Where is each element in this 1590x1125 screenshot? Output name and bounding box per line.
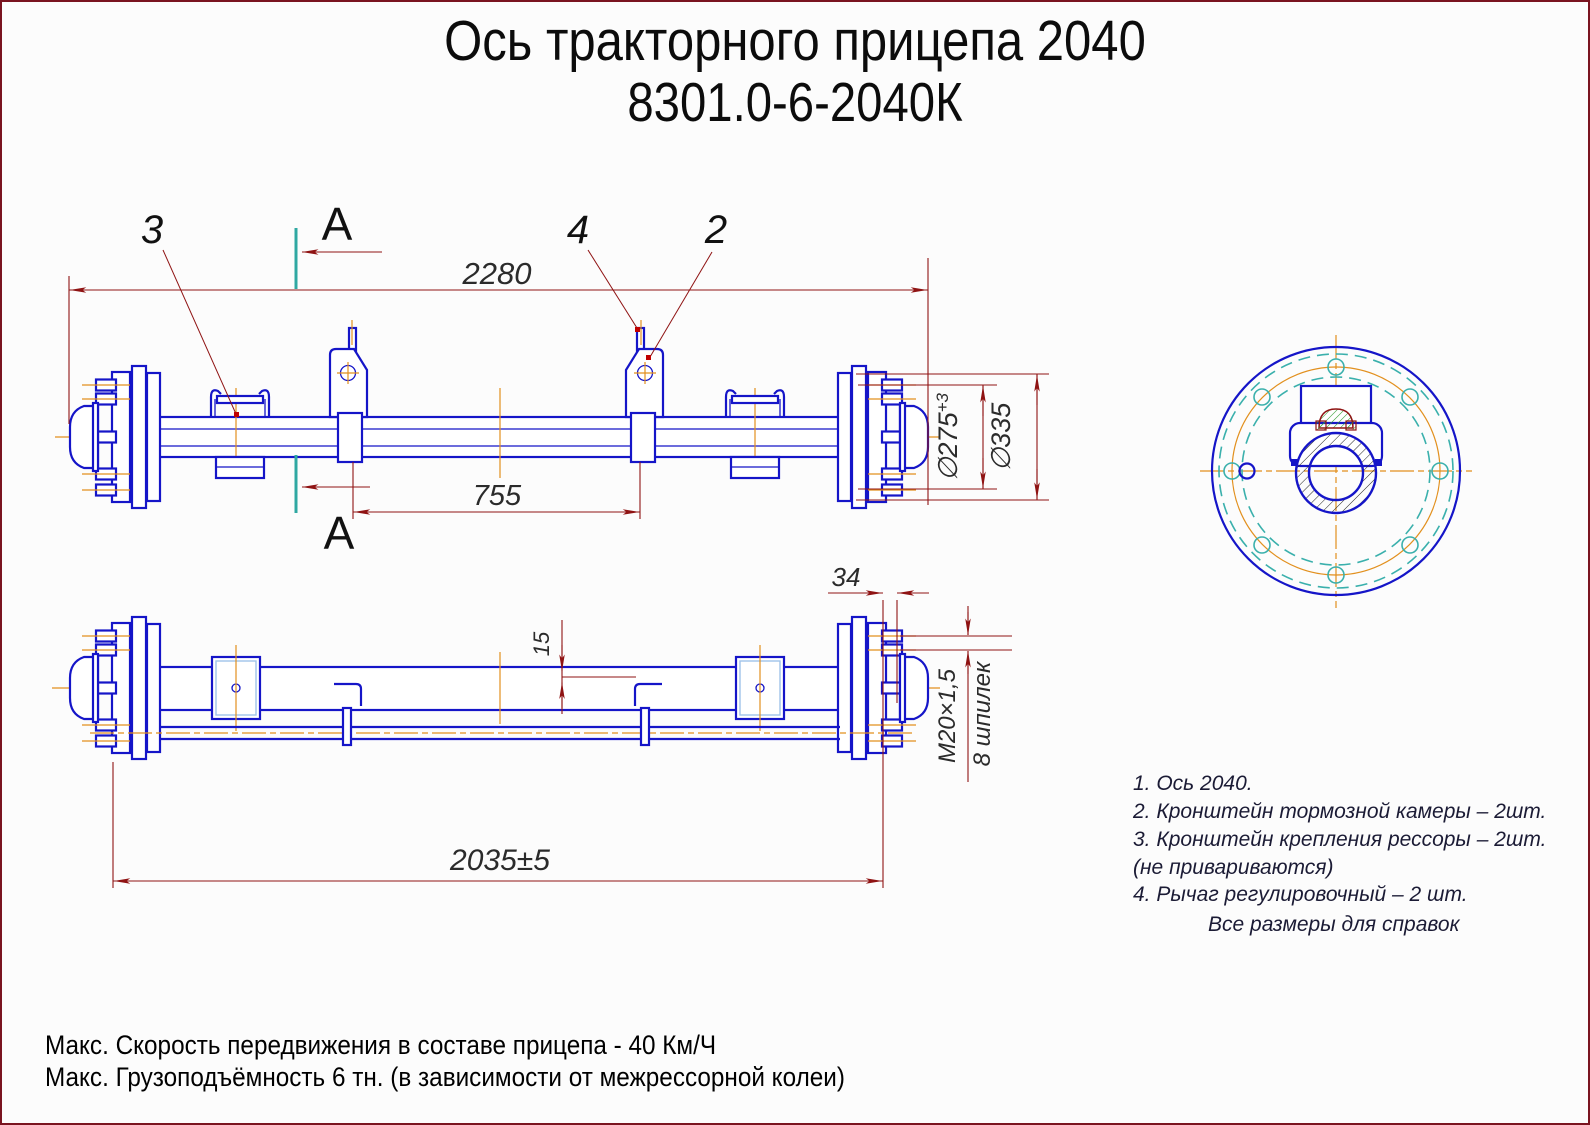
leader-dot-3 xyxy=(234,412,239,417)
spring-seat-left xyxy=(212,645,260,731)
section-label-bottom: А xyxy=(324,507,355,559)
rod-bracket-left xyxy=(343,708,351,745)
dim-bolt-circle-value: ∅275 xyxy=(933,411,963,481)
leader-dot-4 xyxy=(635,327,640,332)
spec-max-load: Макс. Грузоподъёмность 6 тн. (в зависимо… xyxy=(45,1062,845,1093)
drawing-sheet: А А 3 4 2 2280 755 ∅ xyxy=(0,0,1590,1125)
dim-stud-thread: М20×1,5 xyxy=(934,668,961,763)
dim-stud-projection: 34 xyxy=(832,562,861,592)
note-4: 4. Рычаг регулировочный – 2 шт. xyxy=(1133,883,1468,907)
callout-2: 2 xyxy=(704,208,727,252)
note-1: 1. Ось 2040. xyxy=(1133,772,1253,796)
rod-bracket-right xyxy=(641,708,649,745)
spec-max-speed: Макс. Скорость передвижения в составе пр… xyxy=(45,1030,716,1061)
notes-footer: Все размеры для справок xyxy=(1208,913,1460,937)
axle-drawing-canvas: А А 3 4 2 2280 755 ∅ xyxy=(0,0,1590,1125)
dim-overall-length: 2280 xyxy=(462,256,532,291)
dim-flange-diameter: ∅335 xyxy=(986,402,1016,472)
note-3: 3. Кронштейн крепления рессоры – 2шт. xyxy=(1133,828,1546,852)
section-label-top: А xyxy=(322,198,353,250)
left-hub-side xyxy=(70,366,160,508)
dim-bolt-circle-tolerance: +3 xyxy=(933,392,952,412)
drawing-title: Ось тракторного прицепа 2040 8301.0-6-20… xyxy=(111,10,1478,132)
callout-4: 4 xyxy=(567,208,589,252)
dim-bolt-circle: ∅275+3 xyxy=(933,392,963,481)
title-line1: Ось тракторного прицепа 2040 xyxy=(111,10,1478,72)
dim-levers-span: 755 xyxy=(473,480,522,512)
callout-3: 3 xyxy=(141,208,163,252)
note-3b: (не привариваются) xyxy=(1133,856,1333,880)
dim-stud-count: 8 шпилек xyxy=(969,660,996,766)
left-hub-plan xyxy=(70,617,160,759)
end-view xyxy=(1200,335,1472,608)
right-hub-side xyxy=(838,366,928,508)
leader-dot-2 xyxy=(646,355,651,360)
dim-rod-offset: 15 xyxy=(529,631,554,656)
spring-seat-right xyxy=(736,645,784,731)
plan-view xyxy=(52,617,940,759)
title-line2: 8301.0-6-2040К xyxy=(111,72,1478,132)
note-2: 2. Кронштейн тормозной камеры – 2шт. xyxy=(1133,800,1546,824)
dim-hub-span: 2035±5 xyxy=(449,844,550,877)
